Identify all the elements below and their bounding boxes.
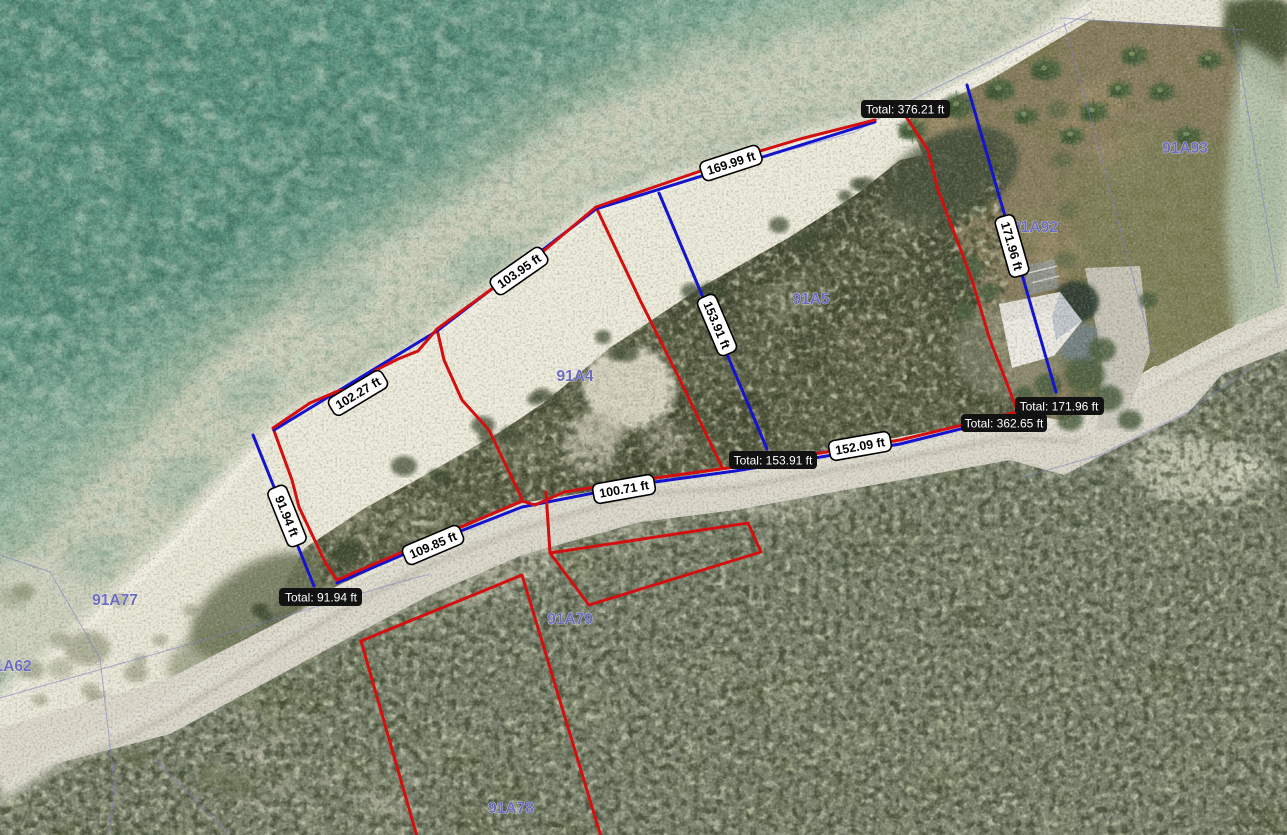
svg-text:91A62: 91A62: [0, 658, 32, 675]
svg-text:Total: 362.65 ft: Total: 362.65 ft: [965, 417, 1044, 431]
svg-text:91A77: 91A77: [92, 592, 138, 609]
svg-text:Total: 376.21 ft: Total: 376.21 ft: [866, 103, 945, 117]
svg-text:Total: 91.94 ft: Total: 91.94 ft: [285, 591, 358, 605]
svg-text:91A5: 91A5: [792, 291, 829, 308]
svg-text:Total: 153.91 ft: Total: 153.91 ft: [734, 454, 813, 468]
svg-text:Total: 171.96 ft: Total: 171.96 ft: [1020, 400, 1099, 414]
svg-text:91A78: 91A78: [488, 800, 534, 817]
svg-text:91A4: 91A4: [556, 368, 593, 385]
svg-text:91A93: 91A93: [1162, 140, 1208, 157]
svg-text:91A79: 91A79: [547, 611, 593, 628]
